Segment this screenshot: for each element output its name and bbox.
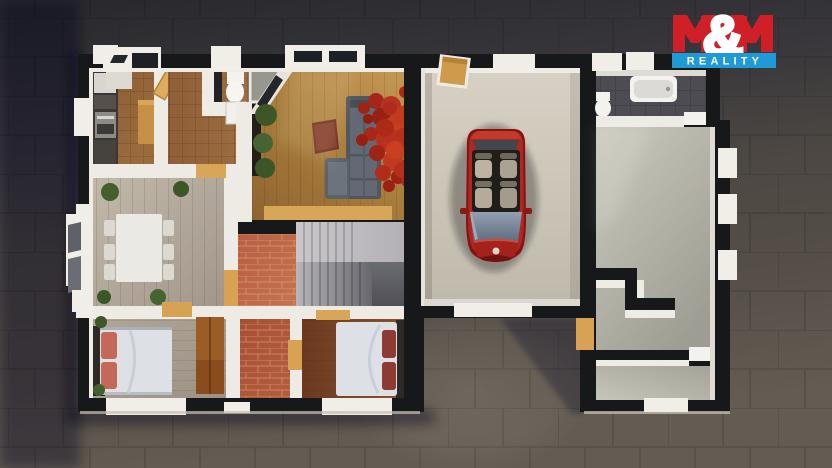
svg-text:REALITY: REALITY: [687, 56, 763, 68]
